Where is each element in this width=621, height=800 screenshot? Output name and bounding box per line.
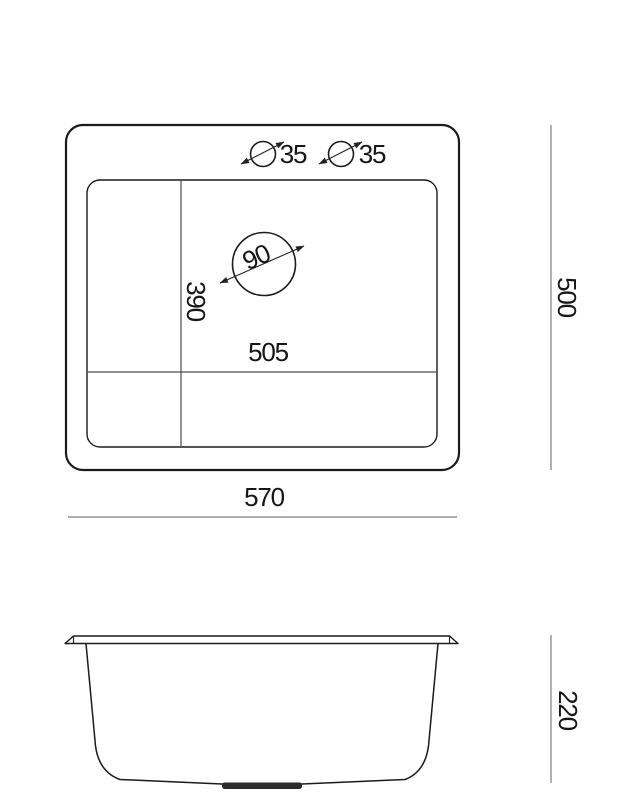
overall-depth-label: 500 bbox=[552, 277, 582, 318]
tap-hole-1-diameter-label: 35 bbox=[280, 139, 307, 169]
tap-hole-2-diameter-arrow bbox=[319, 142, 362, 164]
tap-hole-1-diameter-arrow bbox=[241, 142, 284, 164]
drain-diameter-label: 90 bbox=[238, 238, 275, 276]
bowl-profile bbox=[86, 644, 438, 785]
top-view-dimensions: 570 500 bbox=[68, 125, 582, 517]
drain-outlet bbox=[222, 783, 302, 790]
bowl-depth-label: 390 bbox=[181, 281, 211, 322]
tap-hole-2 bbox=[329, 142, 354, 167]
side-view-dimensions: 220 bbox=[551, 635, 583, 783]
bowl-width-label: 505 bbox=[248, 337, 289, 367]
sink-technical-drawing: 35 35 90 390 505 570 500 bbox=[0, 0, 621, 800]
technical-drawing-page: 35 35 90 390 505 570 500 bbox=[0, 0, 621, 800]
sink-outer-edge bbox=[66, 125, 459, 470]
tap-hole-2-diameter-label: 35 bbox=[359, 139, 386, 169]
side-view bbox=[65, 636, 458, 789]
bowl-inner-edge bbox=[87, 180, 437, 447]
overall-width-label: 570 bbox=[244, 482, 285, 512]
rim-profile bbox=[65, 636, 458, 644]
top-view: 35 35 90 390 505 bbox=[66, 125, 459, 470]
tap-hole-1 bbox=[251, 142, 276, 167]
height-label: 220 bbox=[553, 690, 583, 731]
